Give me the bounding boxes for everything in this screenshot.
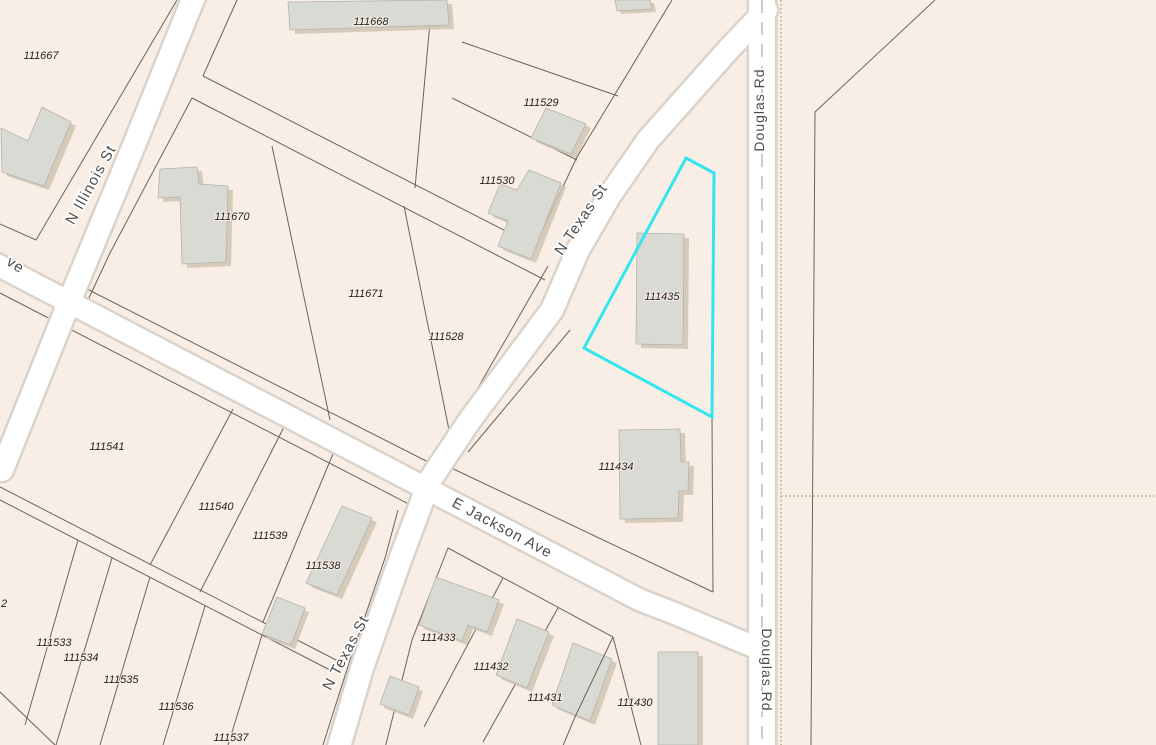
parcel-label: 111433 [420, 632, 456, 644]
parcel-label: 111539 [252, 530, 287, 542]
parcel-label: 111430 [617, 697, 653, 709]
parcel-label: 111668 [353, 16, 389, 28]
parcel-label: 111432 [473, 661, 508, 673]
parcel-label: 111529 [523, 97, 558, 109]
parcel-label: 111530 [479, 175, 515, 187]
parcel-label: 111534 [63, 652, 98, 664]
parcel-label: 111671 [348, 288, 383, 300]
parcel-label: 111667 [23, 50, 59, 62]
parcel-label: 111670 [214, 211, 250, 223]
building [658, 652, 703, 745]
parcel-label: 111533 [36, 637, 72, 649]
parcel-label: 111538 [305, 560, 341, 572]
building [619, 429, 694, 523]
parcel-label: 111528 [428, 331, 464, 343]
map-canvas[interactable]: 111667 111668 111529 111530 111670 11167… [0, 0, 1156, 745]
parcel-label-partial: 2 [0, 598, 7, 610]
parcel-label: 111541 [89, 441, 124, 453]
building [615, 0, 656, 14]
parcel-label: 111540 [198, 501, 234, 513]
parcel-label: 111431 [527, 692, 562, 704]
map-viewport: 111667 111668 111529 111530 111670 11167… [0, 0, 1156, 745]
street-label-douglas-rd-upper: Douglas Rd [751, 68, 767, 151]
parcel-label: 111536 [158, 701, 194, 713]
parcel-label-highlighted: 111435 [644, 291, 680, 303]
parcel-label: 111535 [103, 674, 139, 686]
map-background [0, 0, 1156, 745]
parcel-label: 111537 [213, 732, 249, 744]
parcel-label: 111434 [598, 461, 633, 473]
street-label-douglas-rd-lower: Douglas Rd [759, 628, 775, 711]
